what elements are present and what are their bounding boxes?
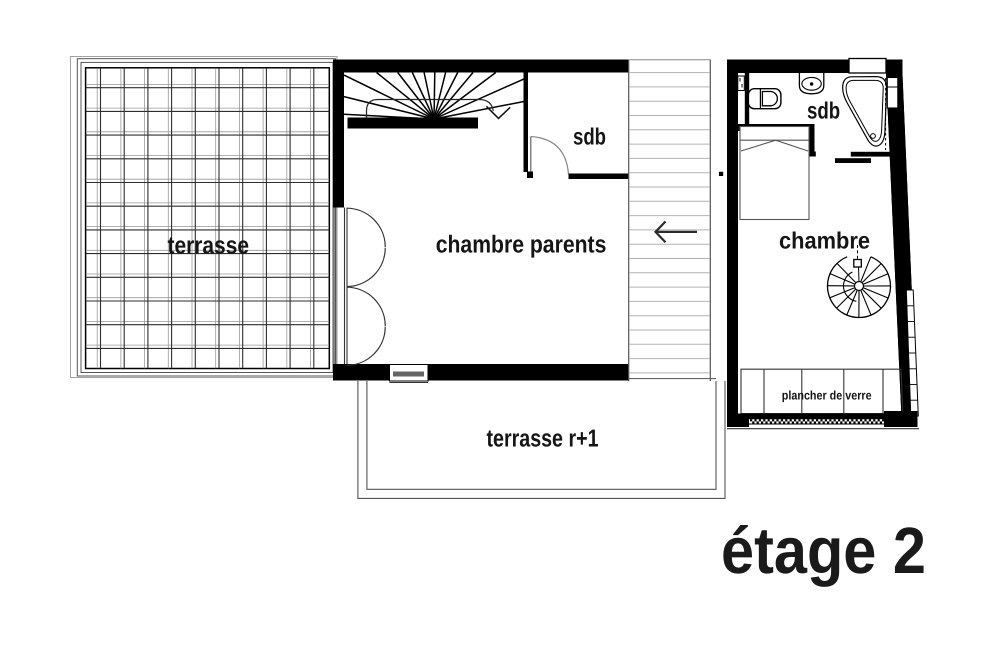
svg-text:plancher de verre: plancher de verre xyxy=(782,388,872,402)
svg-text:terrasse: terrasse xyxy=(168,233,250,260)
svg-text:chambre: chambre xyxy=(779,227,870,253)
svg-text:étage 2: étage 2 xyxy=(721,514,926,587)
svg-text:chambre parents: chambre parents xyxy=(436,231,607,258)
svg-text:sdb: sdb xyxy=(573,123,606,149)
svg-text:terrasse r+1: terrasse r+1 xyxy=(487,425,599,452)
svg-text:sdb: sdb xyxy=(807,97,840,123)
